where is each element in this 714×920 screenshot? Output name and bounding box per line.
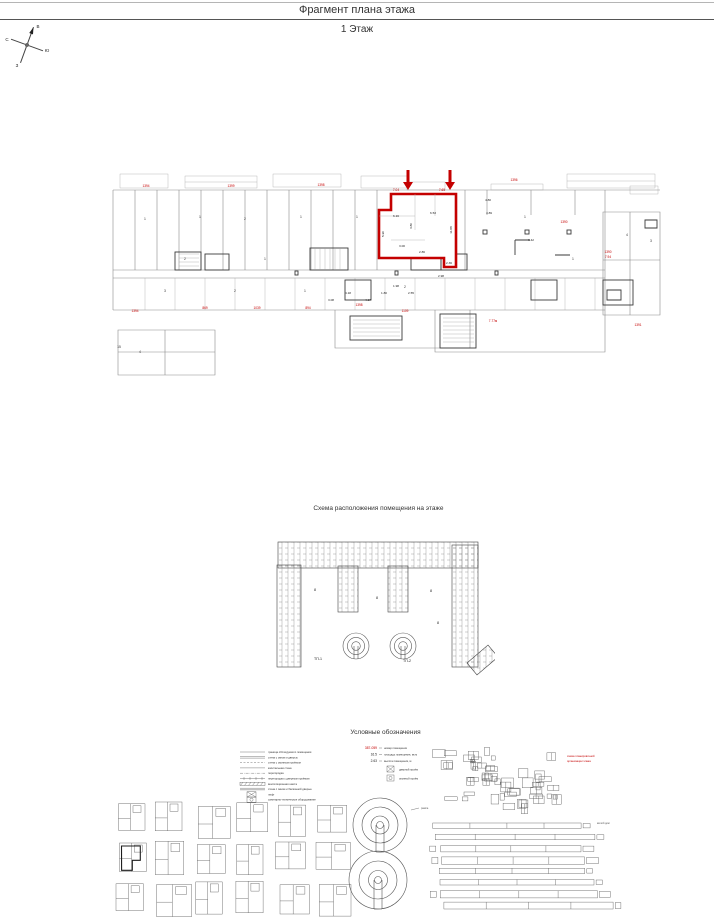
legend-item-label: стена с оконным проёмом [268,761,301,765]
floor-plan-drawing: 1394139913987.047.651396139013907.941394… [105,160,665,395]
legend-row: стена с окном и дверью [240,756,298,759]
red-room-number: 7.04 [393,188,399,192]
legend-row: перегородка [240,772,284,775]
legend-row: перегородка с дверным проёмом [240,777,310,781]
sheet-top-border [0,2,714,3]
legend-item-label: вентиляционная шахта [268,783,297,786]
dimension-label: 6.53 [430,211,436,215]
dimension-label: 3.80 [409,223,413,229]
legend-row: стена с окном и балконной дверью [240,787,312,791]
legend-symbol-rows: граница обследуемого помещениястена с ок… [240,750,316,802]
compass-east: В [36,24,39,29]
red-room-number: 1391 [634,323,641,327]
svg-text:организации этажа: организации этажа [567,760,591,763]
floor-subtitle: 1 Этаж [0,24,714,35]
red-room-number: 1396 [510,178,517,182]
room-number: 1 [524,215,526,219]
room-number: 15 [117,345,121,349]
red-room-number: 7.77м [489,319,497,323]
room-number: 1 [264,257,266,261]
compass-west: З [16,63,19,68]
legend-value: 2.63 [371,759,378,763]
red-room-number: 1398 [355,303,362,307]
site-scheme-title: Схема расположения помещения на этаже [313,505,443,512]
room-number: 2 [244,217,246,221]
red-room-number: 1109 [402,309,409,313]
room-number: 4 [139,350,141,354]
room-number: 2 [234,289,236,293]
room-number: 1 [300,215,302,219]
legend-row: стена с оконным проёмом [240,761,301,765]
svg-text:схема планировочной: схема планировочной [567,754,595,758]
red-room-number: 7.94 [605,255,611,259]
room-number: 2 [404,285,406,289]
room-number: 1 [144,217,146,221]
dimension-label: 6.42 [528,238,534,242]
red-room-number: 1039 [253,306,260,310]
legend-item-label: стена с окном и балконной дверью [268,787,312,791]
entrance-arrow-left [403,170,413,190]
dimension-label: 4.18 [345,291,351,295]
legend-item-label: санитарно-техническое оборудование [268,798,316,802]
sheet: Фрагмент плана этажа 1 Этаж В С Ю З [0,0,714,920]
legend-value-label: площадь помещения, кв.м [384,754,417,757]
legend-extra-label: оконный проём [399,777,418,781]
site-marker: ТП-1 [314,657,322,661]
red-room-number: 869 [202,306,208,310]
dimension-label: 2.36 [446,261,452,265]
dimension-label: 2.98 [438,274,444,278]
room-number: 4 [626,233,628,237]
dimension-label: 3.00 [399,244,405,248]
room-number: 1 [199,215,201,219]
legend-item-label: перегородка [268,772,284,775]
site-scheme-drawing: 8888ТП-1ТП-2 [255,533,495,678]
strip-note: жилой дом [597,822,610,825]
ramp-spirals: рампа [349,798,429,909]
room-number: 2 [184,257,186,261]
legend-drawing: граница обследуемого помещениястена с ок… [105,722,625,920]
red-room-number: 1394 [131,309,138,313]
red-room-number: 1390 [560,220,567,224]
legend-value-label: высота помещения, м [384,760,412,763]
legend-item-label: лифт [268,792,275,796]
red-room-number: 894 [305,306,311,310]
legend-item-label: стена с окном и дверью [268,756,298,759]
title-divider [0,19,714,20]
room-number: 1 [572,257,574,261]
legend-row: капитальная стена [240,767,292,770]
site-marker: 8 [376,596,378,600]
room-number: 3 [164,289,166,293]
room-number: 1 [304,289,306,293]
building-strip-plans [430,823,621,909]
compass-north: С [5,37,9,42]
dimension-label: 1.80 [381,291,387,295]
site-marker: 8 [430,589,432,593]
site-marker: ТП-2 [403,659,411,663]
dimension-label: 2.55 [408,291,414,295]
dimension-label: 3.08 [328,298,334,302]
site-marker: 8 [437,621,439,625]
legend-item-label: граница обследуемого помещения [268,750,312,754]
page-title: Фрагмент плана этажа [0,4,714,16]
red-room-number: 7.65 [439,188,445,192]
legend-item-label: перегородка с дверным проёмом [268,777,310,781]
site-marker: 8 [314,588,316,592]
legend-row: вентиляционная шахта [240,782,297,786]
red-room-number: 1399 [227,184,234,188]
svg-text:рампа: рампа [421,807,429,810]
compass-south: Ю [45,48,50,53]
dimension-label: 4.89 [486,211,492,215]
room-number: 1 [356,215,358,219]
dimension-label: 6.16 [393,214,399,218]
dimension-label: 4.80 [485,198,491,202]
legend-row: лифт [247,792,275,797]
legend-value-rows: 387-059номер помещения16.5площадь помеще… [365,746,417,763]
red-room-number: 1390 [604,250,611,254]
dimension-label: 1.98 [393,284,399,288]
cluster-note: схема планировочной организации этажа [567,754,595,763]
legend-value: 16.5 [371,753,378,757]
dimension-label: 4.17 [365,298,371,302]
site-block-markers: 8888ТП-1ТП-2 [314,588,439,663]
legend-extra-symbols: дверной проём оконный проём [387,766,418,781]
red-room-number: 1394 [142,184,149,188]
dimension-label: 2.86 [419,250,425,254]
legend-value: 387-059 [365,746,377,750]
red-room-number: 1398 [317,183,324,187]
unit-plans-grid [116,802,351,917]
legend-value-label: номер помещения [384,747,408,750]
furnished-plan-cluster [433,747,562,813]
highlighted-unit-outline [379,194,456,267]
legend-item-label: капитальная стена [268,767,292,770]
legend-row: санитарно-техническое оборудование [247,797,316,802]
room-number: 3 [650,239,652,243]
legend-row: граница обследуемого помещения [240,750,312,754]
dimension-label: 11.88 [449,226,453,234]
dimension-label: 5.90 [381,231,385,237]
compass-icon: В С Ю З [2,20,52,70]
entrance-arrow-right [445,170,455,190]
legend-extra-label: дверной проём [399,768,418,772]
